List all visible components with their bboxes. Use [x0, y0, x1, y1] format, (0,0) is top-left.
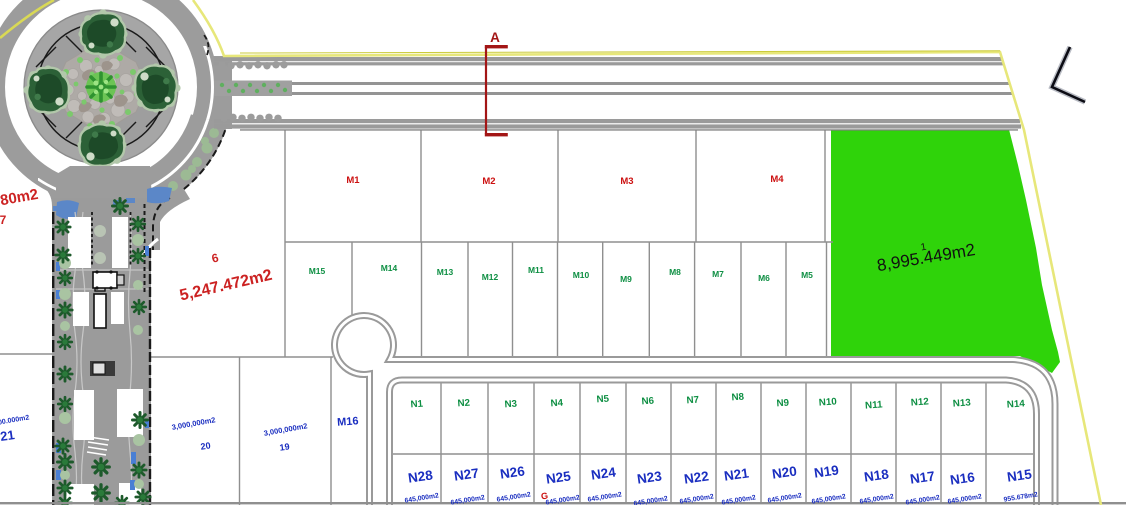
svg-text:N7: N7 — [686, 395, 700, 407]
svg-text:M15: M15 — [309, 266, 326, 276]
svg-text:A: A — [490, 30, 500, 45]
svg-text:M13: M13 — [437, 267, 454, 277]
svg-text:M11: M11 — [528, 265, 544, 275]
svg-text:20: 20 — [200, 440, 211, 451]
svg-text:N12: N12 — [910, 396, 929, 408]
svg-text:M14: M14 — [381, 263, 398, 273]
svg-text:N11: N11 — [865, 399, 884, 411]
svg-text:N3: N3 — [504, 399, 518, 411]
svg-text:M12: M12 — [482, 272, 499, 282]
svg-text:N9: N9 — [776, 398, 790, 410]
svg-text:M6: M6 — [758, 273, 770, 283]
svg-text:N1: N1 — [410, 399, 424, 411]
svg-text:M3: M3 — [620, 176, 633, 187]
svg-text:M5: M5 — [801, 270, 813, 280]
svg-text:M2: M2 — [482, 176, 495, 187]
svg-text:M10: M10 — [573, 270, 590, 280]
svg-text:M1: M1 — [346, 175, 360, 186]
svg-text:19: 19 — [279, 441, 290, 452]
svg-text:N13: N13 — [952, 397, 971, 409]
svg-text:N5: N5 — [596, 394, 610, 406]
svg-text:N14: N14 — [1006, 398, 1025, 410]
svg-text:M16: M16 — [337, 415, 359, 428]
svg-text:N8: N8 — [731, 392, 745, 404]
svg-text:N2: N2 — [457, 398, 471, 410]
svg-text:M8: M8 — [669, 267, 681, 277]
svg-text:M4: M4 — [770, 174, 784, 185]
svg-text:M9: M9 — [620, 274, 632, 284]
svg-text:21: 21 — [0, 427, 16, 444]
svg-text:N10: N10 — [818, 396, 837, 408]
svg-text:7: 7 — [0, 213, 7, 227]
svg-text:M7: M7 — [712, 269, 724, 279]
svg-text:N4: N4 — [550, 398, 564, 410]
svg-text:N6: N6 — [641, 396, 655, 408]
